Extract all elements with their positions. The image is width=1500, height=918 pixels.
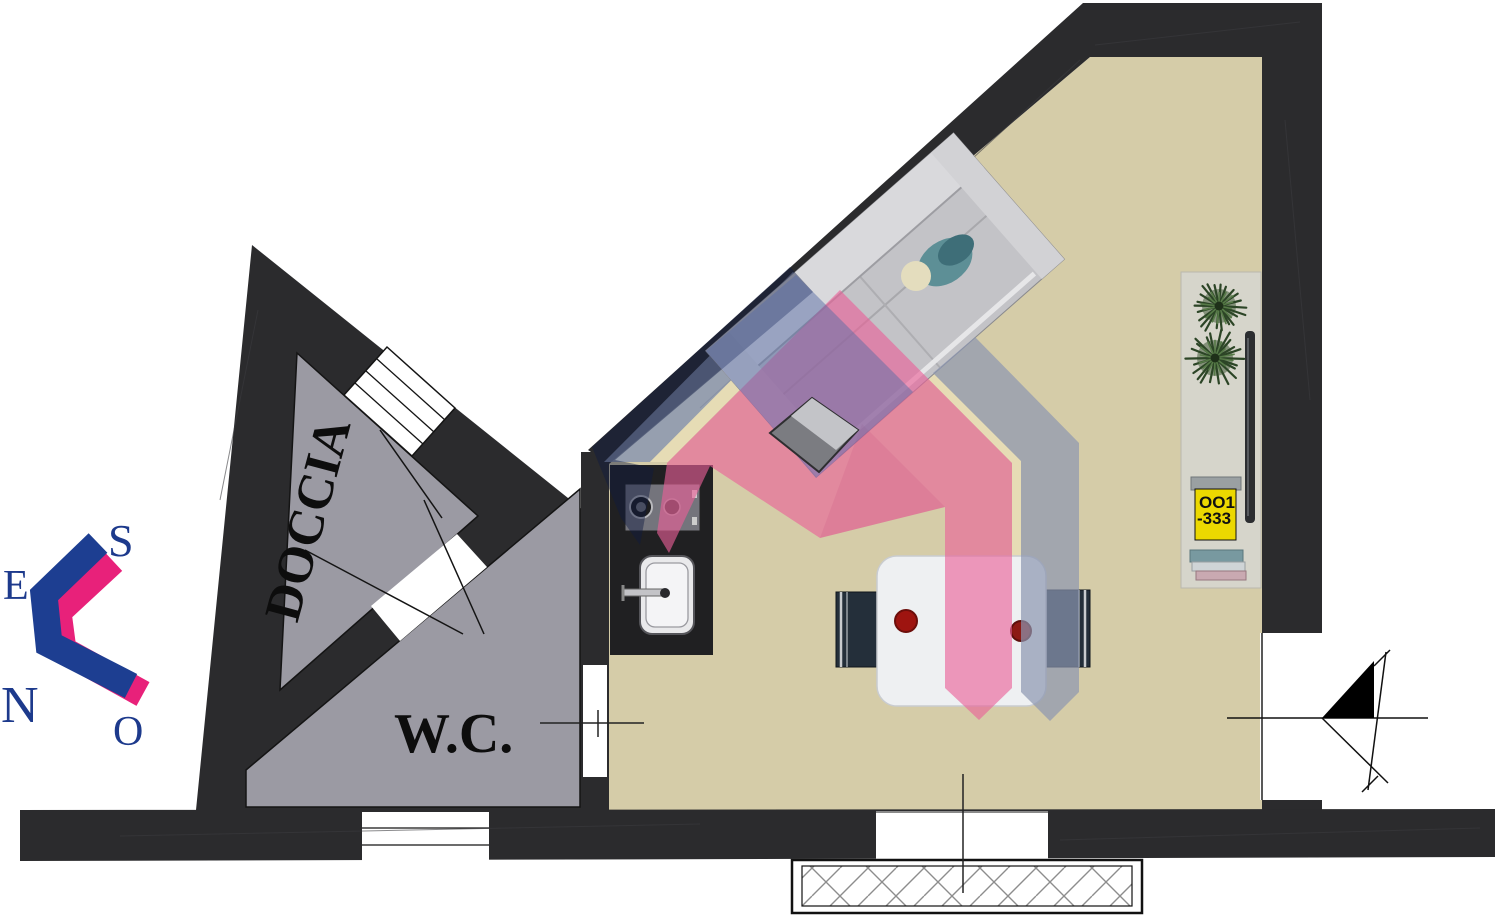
svg-text:E: E bbox=[3, 563, 29, 609]
svg-text:-333: -333 bbox=[1197, 509, 1231, 528]
svg-text:O: O bbox=[113, 709, 143, 755]
svg-text:W.C.: W.C. bbox=[394, 703, 513, 765]
svg-text:S: S bbox=[108, 515, 134, 566]
svg-text:N: N bbox=[1, 677, 39, 734]
